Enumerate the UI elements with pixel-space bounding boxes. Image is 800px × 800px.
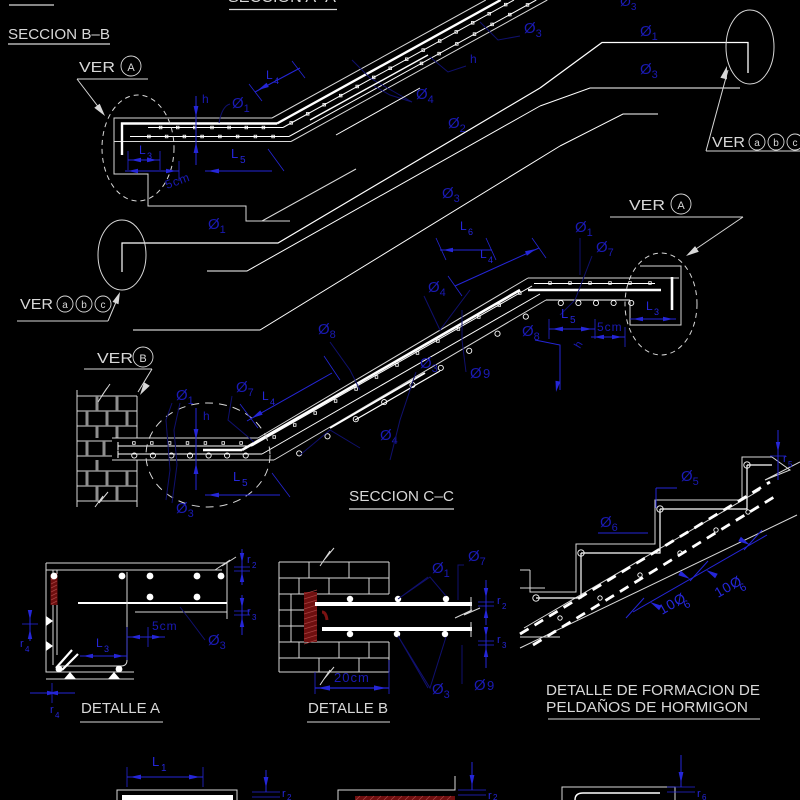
svg-text:L: L (231, 146, 239, 161)
svg-text:L: L (646, 299, 654, 313)
svg-text:5: 5 (570, 315, 577, 326)
svg-text:h: h (202, 92, 210, 106)
svg-text:5: 5 (240, 155, 247, 166)
svg-text:4: 4 (25, 645, 30, 654)
svg-text:r: r (783, 453, 788, 465)
svg-text:b: b (81, 300, 87, 311)
svg-text:A: A (127, 62, 135, 74)
svg-text:9: 9 (483, 366, 491, 381)
svg-text:B: B (139, 353, 146, 365)
svg-text:3: 3 (252, 613, 257, 622)
svg-text:L: L (152, 754, 160, 769)
svg-text:6: 6 (468, 227, 474, 237)
svg-text:5: 5 (788, 460, 793, 469)
svg-text:6: 6 (702, 793, 707, 800)
svg-text:L: L (266, 68, 274, 82)
svg-text:r: r (247, 554, 252, 566)
svg-text:L: L (480, 247, 488, 261)
svg-text:20cm: 20cm (334, 670, 370, 685)
svg-text:r: r (282, 788, 287, 800)
svg-text:VER: VER (79, 59, 115, 76)
svg-text:r: r (488, 790, 493, 800)
svg-text:a: a (754, 138, 760, 149)
svg-text:4: 4 (488, 255, 494, 265)
svg-text:3: 3 (654, 307, 660, 317)
svg-text:h: h (470, 52, 478, 66)
svg-text:L: L (139, 143, 147, 157)
svg-text:c: c (793, 138, 798, 149)
svg-text:1: 1 (161, 763, 168, 774)
svg-text:L: L (262, 389, 270, 403)
svg-text:r: r (497, 634, 502, 646)
svg-text:c: c (101, 300, 106, 311)
svg-text:3: 3 (502, 641, 507, 650)
svg-text:L: L (96, 636, 104, 650)
svg-text:L: L (460, 219, 468, 233)
svg-text:Ø: Ø (470, 365, 482, 382)
svg-text:5: 5 (242, 478, 249, 489)
svg-text:VER: VER (629, 197, 665, 214)
svg-text:5cm: 5cm (597, 320, 623, 334)
svg-text:PELDAÑOS DE HORMIGON: PELDAÑOS DE HORMIGON (546, 699, 748, 716)
svg-text:Ø: Ø (474, 677, 486, 694)
svg-text:9: 9 (487, 678, 495, 693)
svg-text:4: 4 (55, 711, 60, 720)
svg-text:L: L (233, 469, 241, 484)
svg-text:r: r (697, 788, 702, 800)
svg-text:a: a (62, 300, 68, 311)
svg-text:L: L (561, 306, 569, 321)
svg-text:A: A (677, 200, 685, 212)
svg-text:VER: VER (97, 350, 133, 367)
svg-text:2: 2 (502, 602, 507, 611)
svg-text:DETALLE B: DETALLE B (308, 700, 388, 717)
svg-text:r: r (247, 606, 252, 618)
svg-text:2: 2 (252, 561, 257, 570)
svg-text:b: b (773, 138, 779, 149)
svg-text:3: 3 (104, 644, 110, 654)
svg-text:VER: VER (712, 134, 745, 151)
svg-text:VER: VER (20, 296, 53, 313)
svg-text:DETALLE A: DETALLE A (81, 700, 160, 717)
svg-text:2: 2 (287, 793, 292, 800)
svg-text:SECCION A–A: SECCION A–A (228, 0, 336, 6)
svg-text:r: r (50, 704, 55, 716)
svg-text:SECCION B–B: SECCION B–B (8, 26, 110, 43)
svg-text:DETALLE DE FORMACION DE: DETALLE DE FORMACION DE (546, 682, 760, 699)
svg-text:h: h (203, 409, 211, 423)
svg-text:r: r (20, 638, 25, 650)
svg-text:r: r (497, 595, 502, 607)
svg-text:2: 2 (493, 793, 498, 800)
svg-text:5cm: 5cm (152, 619, 178, 633)
svg-text:SECCION C–C: SECCION C–C (349, 488, 454, 505)
